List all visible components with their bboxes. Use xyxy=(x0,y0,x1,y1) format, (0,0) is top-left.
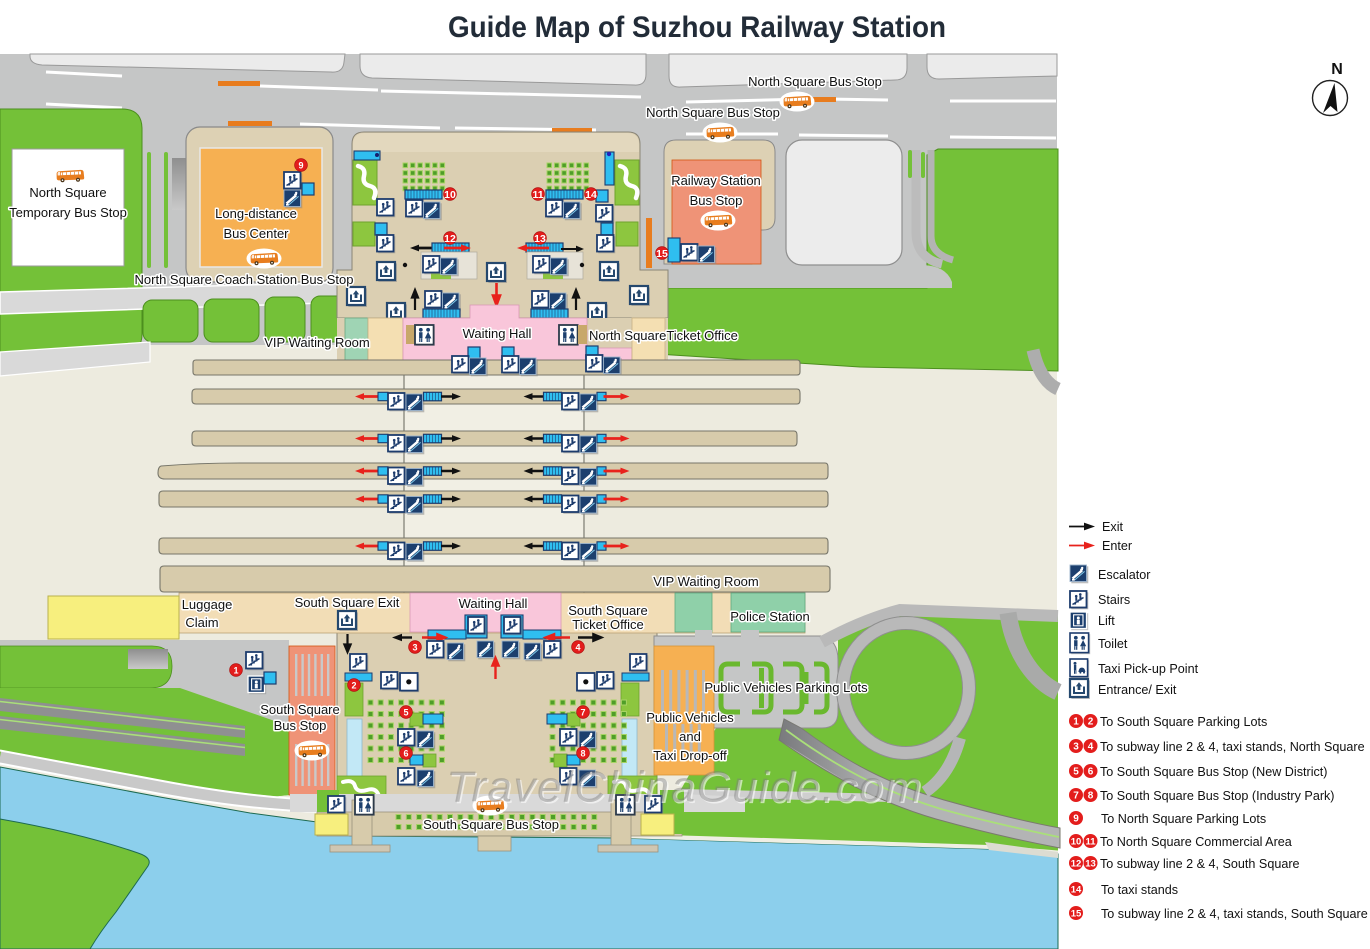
svg-text:To South Square Bus Stop (New: To South Square Bus Stop (New District) xyxy=(1100,765,1327,779)
svg-text:5: 5 xyxy=(1073,767,1079,778)
svg-text:8: 8 xyxy=(1088,791,1094,802)
svg-text:6: 6 xyxy=(403,748,408,758)
svg-text:15: 15 xyxy=(656,248,668,260)
svg-text:12: 12 xyxy=(444,233,456,245)
svg-text:North Square: North Square xyxy=(29,185,106,200)
svg-text:North Square Coach Station Bus: North Square Coach Station Bus Stop xyxy=(135,272,354,287)
svg-text:12: 12 xyxy=(1071,859,1082,870)
svg-text:North Square Bus Stop: North Square Bus Stop xyxy=(748,74,882,89)
svg-text:9: 9 xyxy=(298,160,303,170)
svg-text:11: 11 xyxy=(1085,837,1096,848)
svg-text:Bus Stop: Bus Stop xyxy=(274,718,327,733)
svg-text:Taxi Pick-up Point: Taxi Pick-up Point xyxy=(1098,662,1199,676)
svg-text:South Square Exit: South Square Exit xyxy=(295,595,400,610)
svg-text:Bus Stop: Bus Stop xyxy=(690,193,743,208)
svg-text:Long-distance: Long-distance xyxy=(215,206,297,221)
svg-text:North Square Bus Stop: North Square Bus Stop xyxy=(646,105,780,120)
svg-text:4: 4 xyxy=(575,642,580,652)
svg-text:Enter: Enter xyxy=(1102,539,1132,553)
svg-text:15: 15 xyxy=(1071,909,1082,920)
svg-text:Temporary Bus Stop: Temporary Bus Stop xyxy=(9,205,127,220)
svg-text:and: and xyxy=(679,729,701,744)
svg-text:13: 13 xyxy=(534,233,546,245)
svg-text:Toilet: Toilet xyxy=(1098,637,1128,651)
svg-text:VIP Waiting Room: VIP Waiting Room xyxy=(653,574,759,589)
svg-text:Luggage: Luggage xyxy=(182,597,233,612)
svg-text:5: 5 xyxy=(403,707,408,717)
svg-text:To North Square Commercial Are: To North Square Commercial Area xyxy=(1100,835,1292,849)
svg-text:Bus Center: Bus Center xyxy=(223,226,289,241)
svg-text:N: N xyxy=(1331,61,1343,78)
svg-text:South Square: South Square xyxy=(260,702,340,717)
svg-text:To South Square Parking Lots: To South Square Parking Lots xyxy=(1100,715,1267,729)
svg-text:To taxi stands: To taxi stands xyxy=(1101,883,1178,897)
svg-text:VIP Waiting Room: VIP Waiting Room xyxy=(264,335,370,350)
svg-text:Entrance/ Exit: Entrance/ Exit xyxy=(1098,683,1177,697)
svg-text:To North Square Parking Lots: To North Square Parking Lots xyxy=(1101,812,1266,826)
svg-text:6: 6 xyxy=(1088,767,1094,778)
svg-text:Ticket Office: Ticket Office xyxy=(572,617,644,632)
svg-text:2: 2 xyxy=(351,680,356,690)
svg-text:3: 3 xyxy=(1073,742,1079,753)
svg-text:8: 8 xyxy=(580,748,585,758)
svg-text:2: 2 xyxy=(1088,717,1094,728)
svg-text:Public Vehicles Parking Lots: Public Vehicles Parking Lots xyxy=(704,680,868,695)
svg-text:Waiting Hall: Waiting Hall xyxy=(459,596,528,611)
svg-text:TravelChinaGuide.com: TravelChinaGuide.com xyxy=(446,763,923,812)
svg-text:11: 11 xyxy=(532,189,543,201)
svg-text:Waiting Hall: Waiting Hall xyxy=(463,326,532,341)
svg-text:7: 7 xyxy=(1073,791,1079,802)
svg-text:To South Square Bus Stop (Indu: To South Square Bus Stop (Industry Park) xyxy=(1100,789,1335,803)
svg-text:3: 3 xyxy=(412,642,417,652)
svg-text:South Square Bus Stop: South Square Bus Stop xyxy=(423,817,559,832)
svg-text:Stairs: Stairs xyxy=(1098,593,1130,607)
svg-text:South Square: South Square xyxy=(568,603,648,618)
svg-text:10: 10 xyxy=(1071,837,1082,848)
svg-text:1: 1 xyxy=(233,665,238,675)
svg-text:13: 13 xyxy=(1085,859,1096,870)
svg-text:Exit: Exit xyxy=(1102,520,1123,534)
svg-text:Claim: Claim xyxy=(185,615,218,630)
svg-text:9: 9 xyxy=(1073,814,1079,825)
svg-text:To subway line 2 & 4, taxi sta: To subway line 2 & 4, taxi stands, North… xyxy=(1100,740,1365,754)
svg-text:Lift: Lift xyxy=(1098,614,1115,628)
svg-text:Escalator: Escalator xyxy=(1098,568,1151,582)
svg-text:4: 4 xyxy=(1088,742,1094,753)
svg-text:7: 7 xyxy=(580,707,585,717)
svg-text:10: 10 xyxy=(444,189,456,201)
svg-text:North SquareTicket Office: North SquareTicket Office xyxy=(589,328,738,343)
svg-text:Taxi Drop-off: Taxi Drop-off xyxy=(653,748,727,763)
svg-text:To subway line 2 & 4, South Sq: To subway line 2 & 4, South Square xyxy=(1100,857,1300,871)
svg-text:Police Station: Police Station xyxy=(730,609,810,624)
svg-text:1: 1 xyxy=(1073,717,1079,728)
svg-text:Guide Map of Suzhou Railway St: Guide Map of Suzhou Railway Station xyxy=(448,11,946,44)
svg-text:14: 14 xyxy=(585,189,597,201)
svg-text:Railway Station: Railway Station xyxy=(671,173,761,188)
svg-text:14: 14 xyxy=(1071,885,1082,896)
svg-text:To subway line 2 & 4, taxi sta: To subway line 2 & 4, taxi stands, South… xyxy=(1101,907,1368,921)
